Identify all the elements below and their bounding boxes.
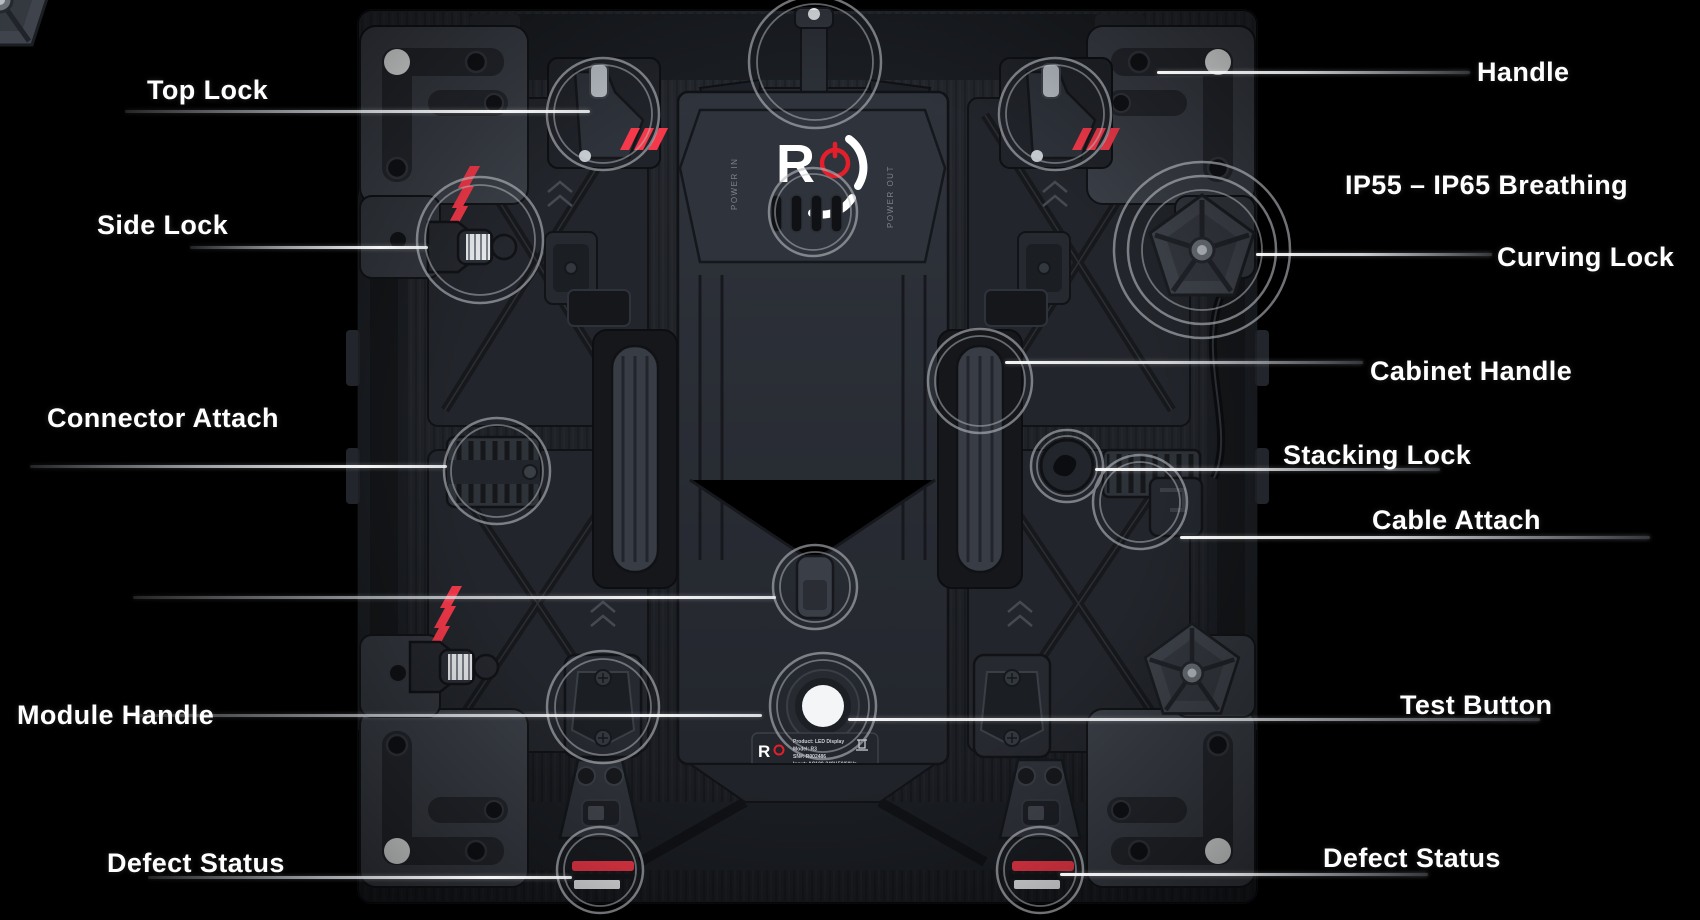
callout-label-connector-attach: Connector Attach — [47, 403, 279, 434]
callout-line-curving-lock — [1256, 253, 1492, 256]
callout-label-defect-status-right: Defect Status — [1323, 843, 1501, 874]
callout-label-cable-attach: Cable Attach — [1372, 505, 1541, 536]
callout-label-cabinet-handle: Cabinet Handle — [1370, 356, 1572, 387]
callout-label-stacking-lock: Stacking Lock — [1283, 440, 1471, 471]
callout-label-handle: Handle — [1477, 57, 1569, 88]
callout-line-side-lock — [190, 246, 428, 249]
callout-line-cable-attach — [1180, 536, 1650, 539]
callout-line-module-handle — [130, 714, 762, 717]
callout-label-ip-breathing: IP55 – IP65 Breathing — [1345, 170, 1628, 201]
callout-line-handle — [1157, 71, 1470, 74]
callout-label-module-handle: Module Handle — [17, 700, 214, 731]
callout-line-unlabeled — [133, 596, 776, 599]
callout-label-curving-lock: Curving Lock — [1497, 242, 1674, 273]
callout-line-connector-attach — [30, 465, 447, 468]
callout-label-top-lock: Top Lock — [147, 75, 268, 106]
callout-label-defect-status-left: Defect Status — [107, 848, 285, 879]
callout-label-side-lock: Side Lock — [97, 210, 228, 241]
callout-label-test-button: Test Button — [1400, 690, 1552, 721]
callout-layer: Top LockSide LockConnector AttachModule … — [0, 0, 1700, 920]
callout-line-top-lock — [125, 110, 590, 113]
scene: R POWER IN POWER OUT — [0, 0, 1700, 920]
callout-line-cabinet-handle — [1005, 361, 1363, 364]
